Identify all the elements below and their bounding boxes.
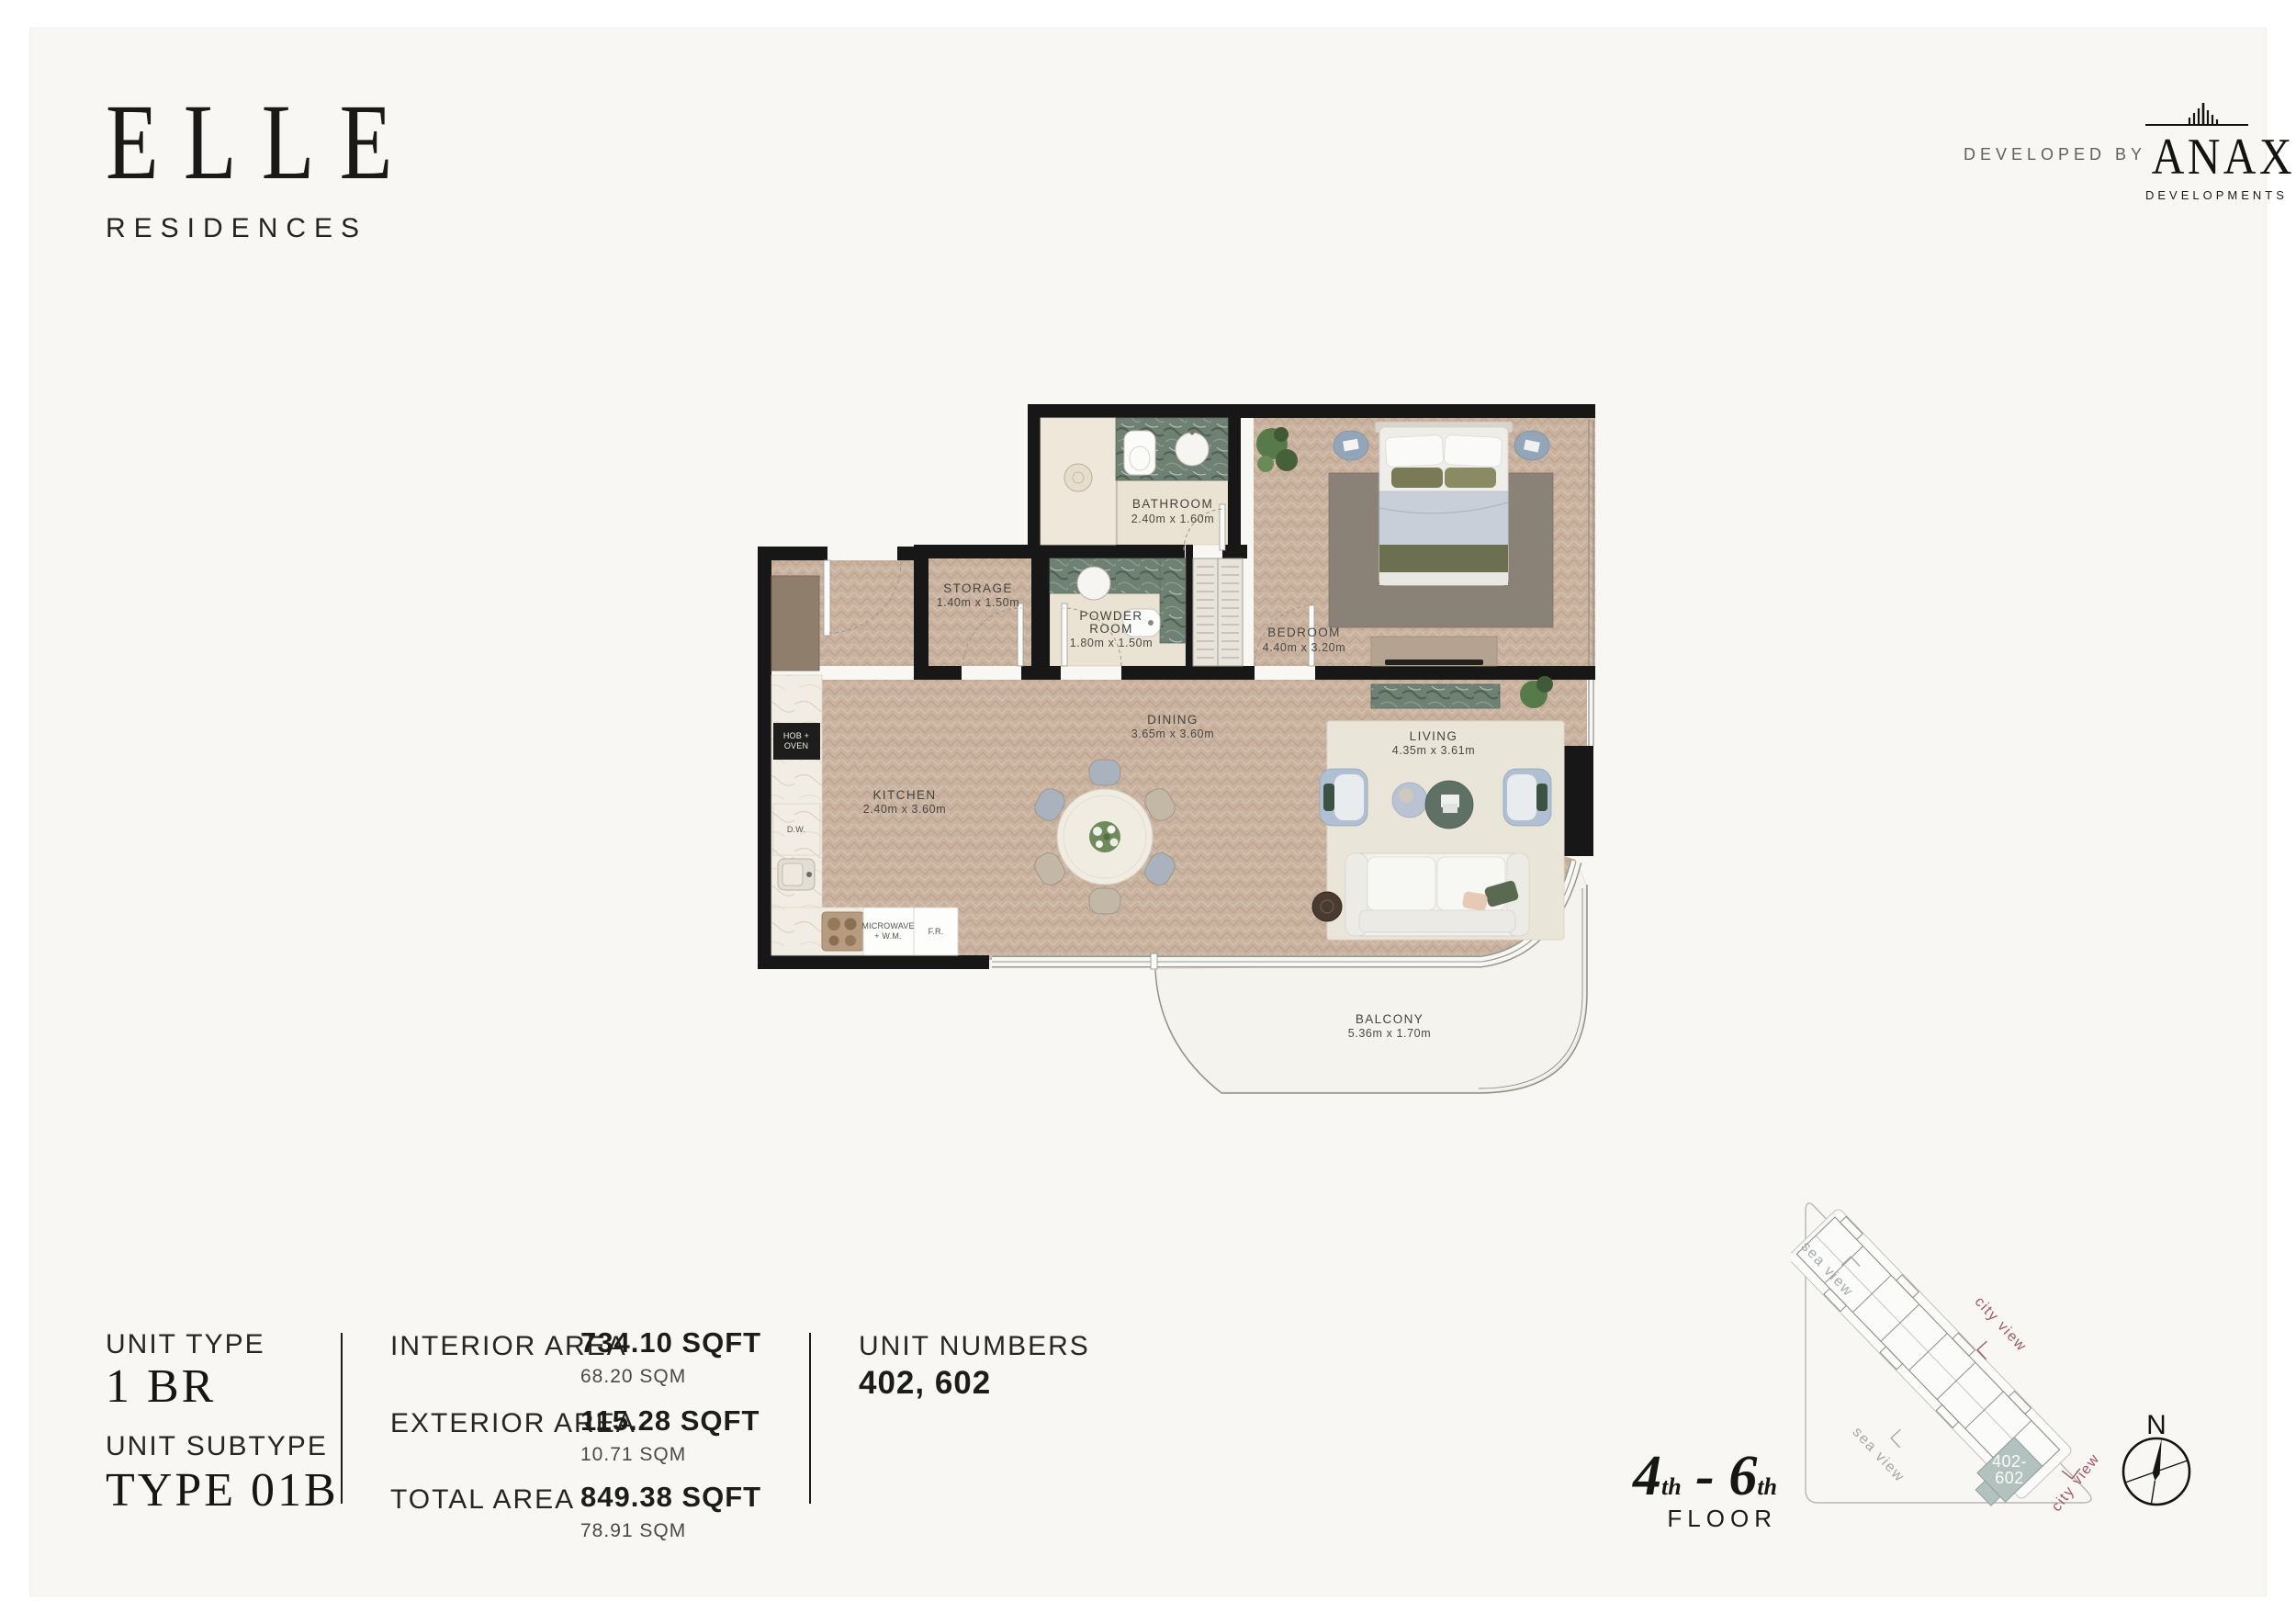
bathroom-label: BATHROOM [1132,497,1213,511]
floor-word: FLOOR [1633,1505,1777,1533]
floor-from-suffix: th [1661,1473,1682,1500]
floor-plan: BATHROOM 2.40m x 1.60m STORAGE 1.40m x 1… [758,400,1630,1125]
kitchen-sink-basin [782,863,803,885]
coffee-table-decor [1399,788,1413,803]
powder-label-1: POWDER [1079,609,1142,623]
anax-subtext: DEVELOPMENTS [2145,188,2248,202]
floor-to-number: 6 [1728,1445,1757,1507]
wall-entry-top2 [897,547,916,560]
entry-niche [771,576,819,671]
balcony-label: BALCONY [1356,1012,1424,1026]
unit-subtype-value: TYPE 01B [106,1463,339,1517]
living-window [1589,680,1593,746]
living-plant-2 [1536,676,1553,693]
wall-powder-right [1186,545,1193,668]
bathroom-door-leaf [1220,504,1225,550]
storage-door-leaf [1018,603,1023,666]
wall-bedroom-bottom [1315,666,1595,680]
brochure-page: ELLE RESIDENCES DEVELOPED BY ANAX DEVELO… [0,0,2296,1624]
armchair-left [1320,769,1367,826]
anax-skyline-icon [2145,103,2248,127]
total-area-label: TOTAL AREA [390,1484,575,1516]
wall-storage-left [914,545,929,680]
wall-left [758,547,771,969]
developed-by-label: DEVELOPED BY [1964,145,2146,164]
floor-indicator: 4th - 6th FLOOR [1633,1448,1777,1533]
entry-door-leaf [824,560,830,636]
microwave-label-1: MICROWAVE [861,921,914,930]
burner-1 [827,918,840,930]
living-sideboard [1371,684,1500,708]
coffee-table-book-2 [1443,804,1458,813]
powder-toilet-button [1148,620,1154,626]
balcony-dims: 5.36m x 1.70m [1348,1027,1431,1040]
compass: N [2123,1410,2189,1505]
closet [1193,558,1243,666]
bathroom-sink [1176,433,1209,466]
wall-top [1028,404,1595,418]
anax-logo: ANAX DEVELOPMENTS [2145,103,2248,202]
bathroom-dims: 2.40m x 1.60m [1131,513,1214,525]
interior-area-values: 734.10 SQFT 68.20 SQM [580,1326,761,1388]
kitchen-faucet [806,872,812,877]
exterior-area-values: 115.28 SQFT 10.71 SQM [580,1404,760,1466]
divider-1 [341,1333,343,1504]
compass-north-letter: N [2146,1410,2167,1440]
burner-2 [845,919,857,930]
burner-4 [845,935,856,946]
powder-dims: 1.80m x 1.50m [1070,637,1153,649]
kitchen-dims: 2.40m x 3.60m [863,803,946,816]
wall-bath-bed-divider [1228,418,1241,545]
hob-board [822,912,864,951]
powder-counter-side [1160,558,1186,643]
dining-label: DINING [1147,713,1199,727]
exterior-sqft: 115.28 SQFT [580,1404,760,1438]
floor-range: 4th - 6th [1633,1448,1777,1505]
hob-label-1: HOB + [783,731,809,740]
unit-numbers-label: UNIT NUMBERS [859,1331,1090,1362]
storage-floor [929,558,1031,666]
total-sqft: 849.38 SQFT [580,1481,761,1514]
side-table [1312,892,1342,921]
balcony-door-jamb [1151,953,1157,969]
microwave-label-2: + W.M. [874,931,901,941]
bedroom-label: BEDROOM [1267,626,1341,639]
bedroom-dims: 4.40m x 3.20m [1263,641,1345,654]
bed [1375,422,1513,585]
shower-drain [1064,464,1092,491]
wall-band-b3 [1121,666,1255,680]
total-area-values: 849.38 SQFT 78.91 SQM [580,1481,761,1542]
armchair-right [1503,769,1551,826]
floor-from-number: 4 [1633,1445,1661,1507]
wall-band-b2 [1021,666,1061,680]
unit-numbers-value: 402, 602 [859,1365,991,1402]
unit-type-label: UNIT TYPE [106,1329,265,1360]
storage-dims: 1.40m x 1.50m [937,596,1019,609]
anax-name: ANAX [2152,131,2243,183]
city-view-label-top: city view [1972,1294,2030,1355]
kitchen-label: KITCHEN [872,788,936,802]
powder-sink [1077,567,1110,600]
fridge-label: F.R. [929,927,944,936]
highlighted-unit-number-1: 402- [1992,1452,2027,1471]
storage-label: STORAGE [943,581,1013,595]
unit-subtype-label: UNIT SUBTYPE [106,1431,328,1462]
wall-bottom [771,955,989,969]
dining-dims: 3.65m x 3.60m [1131,727,1214,740]
highlighted-unit-number-2: 602 [1995,1469,2024,1487]
elle-logo: ELLE RESIDENCES [106,99,495,244]
hob-label-2: OVEN [784,741,808,750]
floor-separator: - [1682,1445,1729,1507]
living-label: LIVING [1410,729,1458,743]
elle-logo-text: ELLE [106,99,417,186]
site-map: 402- 602 sea view city view sea view cit… [1791,1180,2268,1612]
powder-door-leaf [1062,603,1067,666]
compass-needle [2147,1438,2165,1505]
wall-living-right [1564,746,1593,856]
interior-sqft: 734.10 SQFT [580,1326,761,1359]
divider-2 [809,1333,811,1504]
floor-to-suffix: th [1757,1473,1777,1500]
tv-screen [1385,660,1483,665]
bathroom-faucet [1190,431,1195,435]
powder-label-2: ROOM [1089,622,1133,636]
unit-type-value: 1 BR [106,1359,216,1414]
burner-3 [829,936,839,946]
sofa [1345,853,1529,936]
table-flowers [1089,821,1120,852]
interior-sqm: 68.20 SQM [580,1366,761,1388]
total-sqm: 78.91 SQM [580,1520,761,1542]
exterior-sqm: 10.71 SQM [580,1444,760,1466]
toilet [1124,431,1155,475]
elle-logo-subtext: RESIDENCES [106,213,495,244]
living-dims: 4.35m x 3.61m [1392,744,1475,757]
wall-band-a2 [1222,545,1247,558]
wall-bathroom-left [1028,418,1041,545]
wall-storage-powder [1031,545,1050,680]
wall-band-b1 [914,666,962,680]
dw-label: D.W. [787,825,805,834]
